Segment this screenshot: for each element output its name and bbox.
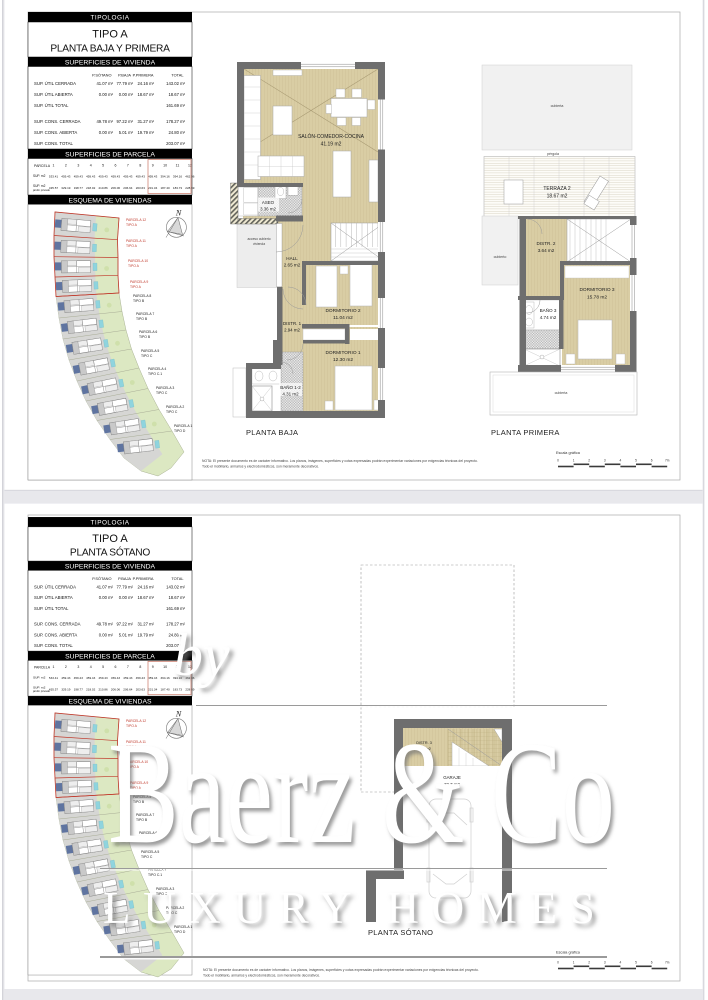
svg-text:Todo el mobiliario, armarios y: Todo el mobiliario, armarios y electrodo… (202, 465, 319, 469)
svg-text:Escala gráfica: Escala gráfica (556, 451, 581, 455)
svg-text:210.86: 210.86 (99, 687, 108, 691)
svg-text:187.40: 187.40 (161, 687, 170, 691)
svg-text:1: 1 (53, 164, 55, 168)
svg-text:41.07 m²: 41.07 m² (96, 81, 113, 86)
svg-text:0: 0 (557, 459, 559, 463)
svg-text:218.02: 218.02 (86, 186, 96, 190)
svg-text:11: 11 (176, 164, 180, 168)
svg-text:4.31 m2: 4.31 m2 (282, 392, 299, 397)
svg-text:10: 10 (163, 164, 167, 168)
svg-text:31.27 m²: 31.27 m² (137, 119, 154, 124)
svg-text:DORMITORIO 1: DORMITORIO 1 (325, 350, 360, 356)
svg-text:SUP. CONS. ABIERTA: SUP. CONS. ABIERTA (34, 632, 77, 637)
svg-text:TIPOLOGIA: TIPOLOGIA (91, 15, 130, 22)
svg-text:6: 6 (115, 164, 117, 168)
svg-text:1: 1 (573, 459, 575, 463)
svg-text:SUPERFICIES DE VIVIENDA: SUPERFICIES DE VIVIENDA (65, 59, 156, 66)
svg-text:18.67 m²: 18.67 m² (137, 92, 154, 97)
svg-text:TIPO A: TIPO A (92, 29, 128, 41)
svg-text:5: 5 (102, 665, 104, 669)
svg-text:Escala gráfica: Escala gráfica (556, 951, 581, 955)
svg-text:206.64: 206.64 (123, 687, 132, 691)
svg-text:329.19: 329.19 (61, 687, 70, 691)
svg-text:210.86: 210.86 (99, 186, 109, 190)
svg-text:97.22 m²: 97.22 m² (116, 119, 133, 124)
svg-text:6: 6 (115, 665, 117, 669)
svg-text:2.65 m2: 2.65 m2 (284, 262, 301, 267)
svg-text:SUP. ÚTIL CERRADA: SUP. ÚTIL CERRADA (34, 81, 76, 86)
svg-text:BAÑO 3: BAÑO 3 (540, 307, 557, 313)
svg-text:18.67 m2: 18.67 m2 (547, 194, 568, 200)
svg-text:459.43: 459.43 (74, 676, 83, 680)
svg-text:11.04 m2: 11.04 m2 (333, 315, 353, 321)
svg-text:77.79 m²: 77.79 m² (116, 585, 133, 590)
svg-text:2.94 m2: 2.94 m2 (284, 328, 300, 333)
svg-text:459.43: 459.43 (74, 175, 84, 179)
svg-text:19.79 m²: 19.79 m² (137, 632, 154, 637)
svg-text:P.PRIMERA: P.PRIMERA (133, 577, 154, 581)
svg-text:SUP. m2: SUP. m2 (33, 676, 46, 680)
svg-text:DORMITORIO 3: DORMITORIO 3 (579, 287, 614, 293)
svg-text:228.69: 228.69 (185, 186, 195, 190)
svg-text:183.73: 183.73 (173, 186, 183, 190)
svg-text:DISTR. 2: DISTR. 2 (537, 241, 556, 246)
svg-text:SUP. CONS. CERRADA: SUP. CONS. CERRADA (34, 119, 81, 124)
svg-text:HALL: HALL (286, 256, 298, 261)
svg-text:459.43: 459.43 (99, 175, 109, 179)
svg-text:NOTA: El presente documento es: NOTA: El presente documento es de caráct… (202, 459, 478, 463)
svg-text:0.00 m²: 0.00 m² (99, 595, 114, 600)
svg-text:18.67 m²: 18.67 m² (137, 595, 154, 600)
svg-text:5: 5 (102, 164, 104, 168)
svg-text:198.77: 198.77 (74, 186, 84, 190)
svg-text:1: 1 (53, 665, 55, 669)
svg-text:ESQUEMA DE VIVIENDAS: ESQUEMA DE VIVIENDAS (68, 699, 152, 706)
svg-text:3.36 m2: 3.36 m2 (260, 207, 276, 212)
svg-text:161.69 m²: 161.69 m² (166, 103, 185, 108)
svg-text:3.64 m2: 3.64 m2 (538, 248, 555, 253)
svg-text:2: 2 (588, 961, 590, 965)
svg-text:1: 1 (573, 961, 575, 965)
svg-text:ESQUEMA DE VIVIENDAS: ESQUEMA DE VIVIENDAS (68, 198, 152, 205)
svg-text:9: 9 (152, 665, 154, 669)
svg-text:0.00 m²: 0.00 m² (99, 92, 114, 97)
svg-text:533.41: 533.41 (49, 175, 59, 179)
svg-text:15.78 m2: 15.78 m2 (587, 295, 607, 301)
svg-text:SUP. ÚTIL TOTAL: SUP. ÚTIL TOTAL (34, 606, 69, 611)
svg-text:31.27 m²: 31.27 m² (137, 622, 154, 627)
svg-text:4: 4 (620, 961, 622, 965)
svg-text:7: 7 (127, 164, 129, 168)
svg-text:231.34: 231.34 (148, 687, 157, 691)
svg-text:P.BAJA: P.BAJA (118, 73, 131, 78)
svg-text:SUP. ÚTIL TOTAL: SUP. ÚTIL TOTAL (34, 103, 69, 108)
svg-text:435.57: 435.57 (49, 186, 59, 190)
svg-text:206.06: 206.06 (111, 186, 121, 190)
svg-text:203.63: 203.63 (136, 186, 146, 190)
svg-text:pérgola: pérgola (547, 152, 559, 156)
svg-text:24.80 m²: 24.80 m² (168, 130, 185, 135)
svg-text:9: 9 (152, 164, 154, 168)
svg-text:Todo el mobiliario, armarios y: Todo el mobiliario, armarios y electrodo… (203, 974, 320, 978)
svg-text:PARCELA: PARCELA (34, 164, 51, 168)
svg-text:jardín privado: jardín privado (32, 689, 50, 693)
svg-text:PLANTA BAJA: PLANTA BAJA (246, 428, 298, 437)
svg-text:P.BAJA: P.BAJA (118, 577, 131, 581)
svg-text:TIPOLOGIA: TIPOLOGIA (91, 520, 130, 527)
svg-text:SALÓN-COMEDOR-COCINA: SALÓN-COMEDOR-COCINA (298, 133, 365, 140)
svg-text:3: 3 (604, 459, 606, 463)
svg-text:459.43: 459.43 (111, 175, 121, 179)
svg-text:4: 4 (90, 665, 92, 669)
svg-text:TIPO A: TIPO A (92, 533, 128, 545)
svg-text:459.43: 459.43 (148, 175, 158, 179)
svg-text:77.79 m²: 77.79 m² (116, 81, 133, 86)
svg-text:329.19: 329.19 (61, 186, 71, 190)
svg-text:459.43: 459.43 (136, 175, 146, 179)
svg-text:TOTAL: TOTAL (171, 577, 184, 581)
svg-text:P.SÓTANO: P.SÓTANO (92, 576, 111, 581)
svg-text:cubierta: cubierta (551, 104, 564, 108)
svg-text:3: 3 (77, 665, 79, 669)
svg-text:SUPERFICIES DE PARCELA: SUPERFICIES DE PARCELA (65, 152, 155, 159)
svg-text:0: 0 (557, 961, 559, 965)
svg-text:PARCELA: PARCELA (34, 666, 51, 670)
svg-text:5: 5 (635, 961, 637, 965)
svg-text:97.22 m²: 97.22 m² (116, 622, 133, 627)
svg-text:459.43: 459.43 (148, 676, 157, 680)
svg-text:19.79 m²: 19.79 m² (137, 130, 154, 135)
svg-text:SUP. ÚTIL ABIERTA: SUP. ÚTIL ABIERTA (34, 92, 73, 97)
svg-text:0.00 m²: 0.00 m² (99, 632, 114, 637)
svg-text:SUP. CONS. ABIERTA: SUP. CONS. ABIERTA (34, 130, 77, 135)
svg-text:2: 2 (588, 459, 590, 463)
svg-text:ASEO: ASEO (262, 200, 275, 205)
svg-text:SUP. m2: SUP. m2 (33, 174, 46, 178)
svg-text:2: 2 (65, 164, 67, 168)
svg-text:206.06: 206.06 (111, 687, 120, 691)
svg-text:459.43: 459.43 (99, 676, 108, 680)
svg-text:49.78 m²: 49.78 m² (96, 622, 113, 627)
svg-text:jardín privado: jardín privado (32, 188, 50, 192)
svg-text:203.07 m²: 203.07 m² (166, 141, 185, 146)
svg-text:SUP. CONS. TOTAL: SUP. CONS. TOTAL (34, 141, 73, 146)
svg-text:218.02: 218.02 (86, 687, 95, 691)
svg-text:2: 2 (65, 665, 67, 669)
svg-text:198.77: 198.77 (74, 687, 83, 691)
svg-text:cubierta: cubierta (555, 391, 568, 395)
svg-text:459.43: 459.43 (61, 175, 71, 179)
svg-text:459.43: 459.43 (123, 676, 132, 680)
svg-text:6: 6 (651, 961, 653, 965)
svg-text:5.01 m²: 5.01 m² (119, 632, 134, 637)
svg-text:533.41: 533.41 (49, 676, 58, 680)
svg-text:4.74 m2: 4.74 m2 (540, 315, 557, 320)
svg-text:4: 4 (90, 164, 92, 168)
svg-text:0.00 m²: 0.00 m² (119, 595, 134, 600)
svg-text:143.02 m²: 143.02 m² (166, 585, 185, 590)
svg-text:PLANTA SÓTANO: PLANTA SÓTANO (70, 546, 151, 559)
svg-text:7: 7 (127, 665, 129, 669)
svg-text:7m: 7m (665, 459, 670, 463)
svg-text:394.16: 394.16 (161, 175, 171, 179)
svg-text:459.43: 459.43 (111, 676, 120, 680)
svg-text:24.16 m²: 24.16 m² (137, 585, 154, 590)
svg-text:462.96: 462.96 (185, 175, 195, 179)
svg-text:18.67 m²: 18.67 m² (168, 595, 185, 600)
svg-text:459.43: 459.43 (123, 175, 133, 179)
svg-text:8: 8 (139, 164, 141, 168)
svg-text:7m: 7m (665, 961, 670, 965)
svg-text:BAÑO 1-2: BAÑO 1-2 (280, 384, 301, 390)
svg-text:vivienda: vivienda (253, 242, 265, 246)
svg-text:PLANTA PRIMERA: PLANTA PRIMERA (491, 428, 560, 437)
svg-text:161.69 m²: 161.69 m² (166, 606, 185, 611)
svg-text:SUP. ÚTIL CERRADA: SUP. ÚTIL CERRADA (34, 585, 76, 590)
svg-text:acceso cubierto: acceso cubierto (247, 237, 270, 241)
svg-text:TOTAL: TOTAL (171, 73, 184, 78)
svg-text:SUP. ÚTIL ABIERTA: SUP. ÚTIL ABIERTA (34, 595, 73, 600)
svg-text:459.43: 459.43 (86, 676, 95, 680)
svg-text:PLANTA BAJA Y PRIMERA: PLANTA BAJA Y PRIMERA (50, 44, 170, 55)
svg-text:18.67 m²: 18.67 m² (168, 92, 185, 97)
svg-text:6: 6 (651, 459, 653, 463)
svg-text:P.PRIMERA: P.PRIMERA (133, 73, 154, 78)
svg-text:435.57: 435.57 (49, 687, 58, 691)
svg-text:394.16: 394.16 (161, 676, 170, 680)
svg-text:cubierto: cubierto (494, 255, 507, 259)
svg-text:231.34: 231.34 (148, 186, 158, 190)
svg-text:P.SÓTANO: P.SÓTANO (92, 73, 111, 78)
svg-text:0.00 m²: 0.00 m² (99, 130, 114, 135)
svg-text:41.07 m²: 41.07 m² (96, 585, 113, 590)
svg-text:DORMITORIO 2: DORMITORIO 2 (325, 308, 360, 314)
svg-text:394.16: 394.16 (173, 175, 183, 179)
svg-text:459.43: 459.43 (61, 676, 70, 680)
svg-text:178.27 m²: 178.27 m² (166, 119, 185, 124)
svg-text:5: 5 (635, 459, 637, 463)
svg-text:143.02 m²: 143.02 m² (166, 81, 185, 86)
svg-text:SUP. CONS. CERRADA: SUP. CONS. CERRADA (34, 622, 81, 627)
svg-text:SUPERFICIES DE VIVIENDA: SUPERFICIES DE VIVIENDA (65, 563, 156, 570)
svg-text:203.63: 203.63 (136, 687, 145, 691)
svg-text:459.43: 459.43 (136, 676, 145, 680)
svg-text:4: 4 (620, 459, 622, 463)
svg-text:12.30 m2: 12.30 m2 (333, 357, 353, 363)
svg-text:459.43: 459.43 (86, 175, 96, 179)
svg-text:SUPERFICIES DE PARCELA: SUPERFICIES DE PARCELA (65, 654, 155, 661)
svg-text:49.78 m²: 49.78 m² (96, 119, 113, 124)
svg-text:SUP. CONS. TOTAL: SUP. CONS. TOTAL (34, 643, 73, 648)
svg-text:10: 10 (163, 665, 167, 669)
svg-text:0.00 m²: 0.00 m² (119, 92, 134, 97)
svg-text:NOTA: El presente documento es: NOTA: El presente documento es de caráct… (203, 968, 479, 972)
svg-text:DISTR. 1: DISTR. 1 (283, 321, 302, 326)
svg-text:24.16 m²: 24.16 m² (137, 81, 154, 86)
svg-text:TERRAZA 2: TERRAZA 2 (543, 186, 570, 192)
svg-text:41.19 m2: 41.19 m2 (321, 142, 342, 148)
svg-text:187.40: 187.40 (161, 186, 171, 190)
svg-text:5.01 m²: 5.01 m² (119, 130, 134, 135)
svg-text:3: 3 (604, 961, 606, 965)
svg-text:206.64: 206.64 (123, 186, 133, 190)
svg-text:8: 8 (139, 665, 141, 669)
svg-text:3: 3 (77, 164, 79, 168)
